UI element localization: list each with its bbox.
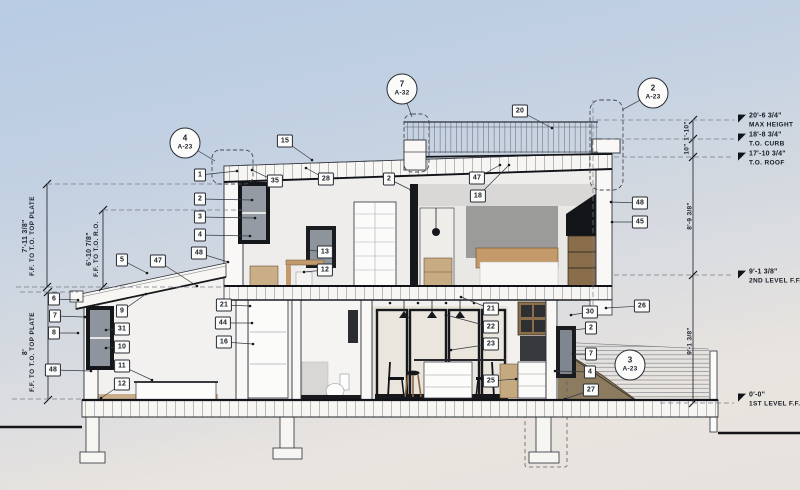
keynote-tag-13: 13	[317, 246, 333, 259]
keynote-tag-6: 6	[48, 293, 60, 306]
keynote-tag-8: 8	[48, 327, 60, 340]
elevation-value: 20'-6 3/4"	[749, 113, 793, 122]
elevation-marker: 20'-6 3/4"MAX HEIGHT	[738, 113, 793, 130]
detail-callout-2-A-23: 2A-23	[638, 78, 669, 109]
callout-sheet: A-23	[646, 95, 661, 102]
keynote-tag-45: 45	[632, 216, 648, 229]
keynote-tag-9: 9	[116, 305, 128, 318]
dimension-text: 7'-11 3/8"F.F. TO T.O. TOP PLATE	[22, 196, 36, 276]
keynote-tag-27: 27	[583, 384, 599, 397]
dimension-label: F.F. TO T.O. R.O.	[93, 221, 100, 277]
keynote-tag-16: 16	[216, 336, 232, 349]
keynote-tag-25: 25	[483, 375, 499, 388]
keynote-tag-11: 11	[114, 360, 130, 373]
keynote-tag-18: 18	[470, 190, 486, 203]
callout-sheet: A-32	[395, 91, 410, 98]
keynote-tag-3: 3	[194, 211, 206, 224]
dimension-text: 8'-9 3/8"	[687, 202, 694, 230]
elevation-label: T.O. CURB	[749, 140, 785, 148]
dimension-text: 1'-10"	[684, 121, 691, 140]
keynote-tag-20: 20	[512, 105, 528, 118]
callout-sheet: A-23	[623, 367, 638, 374]
callout-number: 3	[628, 357, 632, 365]
detail-callout-4-A-23: 4A-23	[170, 128, 201, 159]
keynote-tag-2: 2	[585, 322, 597, 335]
benchmark-icon	[738, 115, 746, 123]
elevation-marker: 0'-0"1ST LEVEL F.F.	[738, 392, 800, 409]
elevation-label: 1ST LEVEL F.F.	[749, 400, 800, 408]
keynote-tag-47: 47	[469, 172, 485, 185]
elevation-value: 17'-10 3/4"	[749, 151, 786, 160]
dimension-value: 6'-10 7/8"	[86, 232, 93, 266]
dimension-text: 10"	[684, 143, 691, 154]
elevation-label: T.O. ROOF	[749, 159, 786, 167]
detail-callout-3-A-23: 3A-23	[615, 350, 646, 381]
dimension-value: 8'	[22, 349, 29, 355]
keynote-tag-4: 4	[584, 366, 596, 379]
keynote-tag-4: 4	[194, 229, 206, 242]
keynote-tag-21: 21	[483, 303, 499, 316]
keynote-tag-47: 47	[150, 255, 166, 268]
keynote-tag-7: 7	[585, 348, 597, 361]
benchmark-icon	[738, 134, 746, 142]
keynote-tag-35: 35	[267, 175, 283, 188]
benchmark-icon	[738, 271, 746, 279]
keynote-tag-12: 12	[114, 378, 130, 391]
benchmark-icon	[738, 394, 746, 402]
elevation-marker: 9'-1 3/8"2ND LEVEL F.F.	[738, 269, 800, 286]
keynote-tag-2: 2	[194, 193, 206, 206]
elevation-value: 0'-0"	[749, 392, 800, 401]
keynote-tag-10: 10	[114, 341, 130, 354]
architectural-section-canvas: 1234481535282471820484526302742754767848…	[0, 0, 800, 490]
benchmark-icon	[738, 153, 746, 161]
dimension-value: 7'-11 3/8"	[22, 219, 29, 252]
keynote-tag-23: 23	[483, 338, 499, 351]
callout-number: 4	[183, 135, 187, 143]
keynote-tag-7: 7	[49, 310, 61, 323]
keynote-tag-48: 48	[191, 247, 207, 260]
keynote-tag-44: 44	[215, 317, 231, 330]
elevation-marker: 17'-10 3/4"T.O. ROOF	[738, 151, 786, 168]
keynote-tag-5: 5	[116, 254, 128, 267]
dimension-text: 6'-10 7/8"F.F. TO T.O. R.O.	[86, 221, 100, 277]
keynote-tag-26: 26	[634, 300, 650, 313]
keynote-tag-2: 2	[383, 173, 395, 186]
dimension-text: 9'-1 3/8"	[687, 327, 694, 355]
elevation-label: MAX HEIGHT	[749, 121, 793, 129]
dimension-label: F.F. TO T.O. TOP PLATE	[29, 196, 36, 276]
elevation-value: 9'-1 3/8"	[749, 269, 800, 278]
keynote-tag-31: 31	[114, 323, 130, 336]
keynote-tag-15: 15	[277, 135, 293, 148]
keynote-tag-48: 48	[45, 364, 61, 377]
keynote-tag-48: 48	[632, 197, 648, 210]
detail-callout-7-A-32: 7A-32	[387, 74, 418, 105]
keynote-tag-1: 1	[194, 169, 206, 182]
callout-number: 7	[400, 81, 404, 89]
dimension-label: F.F. TO T.O. TOP PLATE	[29, 312, 36, 392]
elevation-marker: 18'-8 3/4"T.O. CURB	[738, 132, 785, 149]
callout-number: 2	[651, 85, 655, 93]
keynote-tag-22: 22	[483, 321, 499, 334]
keynote-tag-21: 21	[216, 299, 232, 312]
keynote-tag-30: 30	[582, 306, 598, 319]
callout-sheet: A-23	[178, 145, 193, 152]
keynote-tag-28: 28	[318, 173, 334, 186]
elevation-value: 18'-8 3/4"	[749, 132, 785, 141]
annotation-layer: 1234481535282471820484526302742754767848…	[0, 0, 800, 490]
dimension-text: 8'F.F. TO T.O. TOP PLATE	[22, 312, 36, 392]
elevation-label: 2ND LEVEL F.F.	[749, 277, 800, 285]
keynote-tag-12: 12	[317, 264, 333, 277]
